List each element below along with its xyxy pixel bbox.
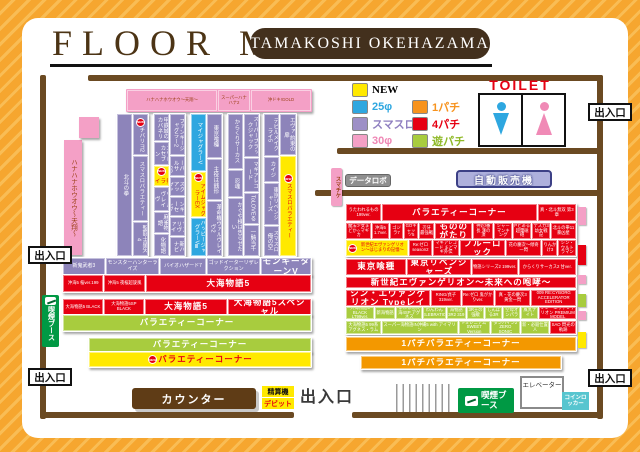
machine-label: ゴッドイーターリザレクション (208, 261, 260, 272)
machine-label: 風丸ナイト (522, 308, 537, 317)
legend-swatch (412, 100, 428, 114)
machine-label: 海物語3R2 319 (448, 308, 465, 317)
hana-hana-island-topbar: ハナハナホウオウ〜天翔〜 スーパーハナハナ2 沖ドキ!GOLD (126, 89, 312, 112)
machine-label: カイジ (269, 161, 275, 178)
machine-label: アイムジャグラーEX (193, 182, 205, 216)
machine-label: Pとある超電磁砲 (514, 224, 530, 238)
legend-swatch (412, 134, 428, 148)
machine-label: ブルーロック (461, 240, 504, 256)
machine-label: GOキャッツ5 (405, 224, 417, 238)
legend-swatch (352, 83, 368, 97)
title-underline (50, 64, 492, 67)
machine-label: からくりサーカス (233, 119, 239, 163)
machine-label: スーパーハナハナ2 (219, 96, 249, 105)
machine-cell: シン・ウルトラマン (558, 240, 576, 256)
machine-cell: 麻雀物語 (154, 212, 169, 233)
machine-label: 新世紀エヴァンゲリオン〜はじまりの記憶〜 (358, 243, 407, 252)
machine-cell: うたわれるもの 199ver. (346, 204, 381, 221)
legend-item: 遊パチ (412, 134, 465, 147)
pachinko-row-h: 大海物語5 99系アグネス・ラムスーパー海物語IN沖縄5 with アイマリンF… (345, 320, 577, 335)
smoking-icon (45, 297, 56, 305)
pachinko-row-b: 魔法少女まどか☆マギカ沖海5 1.7ver.ゴジラ7GOキャッツ5刃牙 最強戦も… (345, 222, 577, 240)
machine-label: 1パチバラエティーコーナー (401, 358, 520, 367)
wall-mid-upper (337, 148, 603, 154)
machine-cell: 大海物語5 99系アグネス・ラム (346, 321, 381, 334)
machine-label: 空母オンパラ (504, 308, 519, 317)
machine-label: 新鬼武者3 (72, 264, 95, 269)
stairs (396, 384, 450, 412)
new-badge: NEW (157, 167, 166, 176)
machine-label: Fミレニアム SWEET Version (460, 321, 490, 334)
machine-label: クランキーセレブ (170, 198, 185, 214)
legend-swatch (352, 100, 368, 114)
machine-label: 東京喰種 (212, 125, 218, 147)
machine-label: 大海物語5 BLACK (66, 305, 101, 310)
machine-label: SAO 閃光の軌跡 (551, 323, 575, 332)
toilet-women (521, 95, 564, 145)
machine-cell: 新・必殺仕置人 (521, 321, 550, 334)
machine-cell: 沖海5 1.7ver. (372, 223, 388, 239)
machine-cell: 忍魂 (228, 170, 243, 197)
checkout-machine-tag: 精算機 (262, 386, 294, 397)
machine-cell: 北斗の拳11 暴凶星 (551, 223, 576, 239)
machine-cell: クランキーセレブ (170, 197, 185, 216)
slot-column-5-right: エヴァ 約束の扉NEWスマスロバラエティー (279, 113, 297, 257)
machine-label: 大海物語5 (164, 302, 208, 311)
machine-label: スーパー海物語IN沖縄5 with アイマリン (383, 323, 457, 332)
machine-label: バイオハザード7 (164, 264, 202, 269)
machine-label: ハナハナホウオウ〜天翔〜 (69, 159, 76, 237)
machine-label: バラエティーコーナー (412, 208, 507, 217)
machine-label: 新海物語 (377, 311, 394, 316)
machine-label: 東京喰種 (357, 262, 395, 271)
machine-label: 真・北斗無双 第3章 (539, 208, 575, 217)
machine-label: 新ハナビ (172, 238, 184, 254)
machine-label: マギアレコード まどマギ外伝 (434, 241, 458, 255)
machine-label: 北斗の拳11 暴凶星 (552, 226, 575, 235)
machine-cell: SAO 閃光の軌跡 (550, 321, 576, 334)
machine-label: バラエティーコーナー (153, 340, 248, 349)
machine-label: 新・必殺仕置人 (522, 323, 549, 332)
machine-cell: デスカ3 幼女戦記 (532, 223, 549, 239)
umi-row-1: 沖海5 桜ver.199沖海5 夜桜超旋風大海物語5 (62, 274, 312, 293)
machine-cell: 海物語3R2 319 (447, 307, 466, 319)
machine-label: マイジャグラーV (196, 122, 202, 164)
machine-label: チバリヨ2 (138, 127, 144, 152)
machine-label: デビルメイクライ5 (266, 116, 278, 154)
machine-cell: 魔法少女まどか☆マギカ (346, 223, 371, 239)
machine-cell: NEW新世紀エヴァンゲリオン〜はじまりの記憶〜 (346, 240, 408, 256)
machine-cell: 東京リベンジャーズ (264, 183, 279, 225)
machine-label: 刃牙 最強戦 (420, 226, 434, 235)
machine-cell: まわるん大海4SP アグネス (396, 307, 422, 319)
machine-label: デスカ3 幼女戦記 (533, 224, 548, 238)
new-badge: NEW (348, 244, 357, 253)
machine-cell: バラエティーコーナー (89, 338, 311, 352)
legend-item: 30φ (352, 134, 416, 147)
legend-swatch (412, 117, 428, 131)
machine-label: ディスクアップ2 (170, 178, 185, 194)
machine-cell: Re:ゼロ season2 (409, 240, 432, 256)
machine-cell: 主役は銭形 (207, 159, 222, 200)
machine-label: エヴァ 約束の扉 (282, 116, 294, 153)
new-badge: NEW (136, 118, 145, 127)
slot-column-3-right: 東京喰種主役は銭形革命機ヴァルヴレイヴ2 (206, 113, 223, 257)
machine-label: 沖ドキ!GOLD (268, 98, 294, 103)
toilet-title: TOILET (480, 77, 560, 93)
machine-cell: マギアレコード (244, 158, 259, 192)
machine-cell: 新海物語 (375, 307, 395, 319)
machine-cell: 花の慶次〜傾奇一閃 (506, 240, 541, 256)
machine-cell: エヴァ 約束の扉 (280, 114, 296, 155)
machine-cell: NEWチバリヨ2 (133, 114, 148, 155)
machine-cell: 1パチバラエティーコーナー (361, 356, 561, 369)
machine-cell: しんぼる3R (485, 307, 502, 319)
machine-label: 魔法少女まどか☆マギカ (347, 224, 370, 238)
machine-cell: 東京喰種 (346, 259, 406, 275)
new-badge: NEW (148, 355, 157, 364)
female-restroom-icon (535, 102, 553, 138)
legend-label: 遊パチ (432, 133, 465, 149)
machine-cell: 新ハナビ (170, 237, 185, 256)
wall-right (597, 75, 603, 419)
machine-cell: 大海物語5 (145, 299, 228, 315)
slot-column-2-left: 甲鉄城のカバネリエウレカセブンNEW白熱ライブヴァルヴレイヴ麻雀物語化物語 (153, 113, 170, 257)
machine-cell: 革命機ヴァルヴレイヴ2 (207, 201, 222, 256)
machine-label: 沖海5 桜ver.199 (68, 281, 99, 286)
machine-label: ヴァルヴレイヴ (154, 189, 169, 210)
machine-label: 大海物語5 (207, 279, 251, 288)
machine-cell: エウレカセブン (154, 142, 169, 164)
machine-cell: バラエティーコーナー (382, 204, 536, 221)
machine-label: 大海物語5SP BLACK (105, 302, 143, 311)
legend-item: 4パチ (412, 117, 465, 130)
machine-cell: ToLOVEる (244, 193, 259, 224)
machine-label: 沖海5 夜桜超旋風 (108, 281, 142, 286)
floor-map-page: FLOOR MAP TAMAKOSHI OKEHAZAMA NEW 25φ スマ… (0, 0, 640, 452)
machine-label: シン・エヴァンゲリオン PREMIUM MODEL (540, 307, 575, 319)
machine-label: 主役は銭形 (212, 166, 218, 194)
machine-cell: ハッピージャグラーVⅢ (191, 218, 206, 256)
machine-cell: 東京リベンジャーズ (407, 259, 470, 275)
machine-label: 押忍!番長 漢の頂 (474, 224, 492, 238)
machine-cell: ダンバイン2 ZERO SONIC (491, 321, 520, 334)
machine-cell: からくりサーカス2 甘ver. (519, 259, 576, 275)
machine-cell: スーパー海物語IN沖縄5 with アイマリン (382, 321, 458, 334)
machine-cell: 刃牙 最強戦 (419, 223, 435, 239)
machine-cell: スーパーハナハナ2 (218, 90, 250, 111)
pachinko-row-g: 大海物語5 BLACK LT99ver.新海物語まわるん大海4SP アグネスわん… (345, 306, 577, 320)
machine-label: スマスロバラエティー (138, 161, 144, 216)
machine-label: 1パチバラエティーコーナー (401, 339, 520, 348)
smart-ticket-label: スマチケ (334, 176, 340, 198)
pachinko-row-f: シン・エヴァンゲリオン TypeレイRING/貞子 319ver.Re:ゼロ 鬼… (345, 289, 577, 307)
machine-label: 大海物語5スペシャル (229, 299, 310, 315)
machine-cell: 大海物語5 BLACK (63, 299, 103, 315)
machine-cell: 3R王の強敵 (467, 307, 484, 319)
legend-item: NEW (352, 83, 416, 96)
machine-label: 麻雀物語 (156, 214, 168, 232)
elevator: エレベーター (520, 376, 564, 409)
machine-label: 忍魂 (233, 178, 239, 189)
exit-right-upper: 出入口 (588, 103, 632, 121)
machine-cell: 沖ドキ!GOLD (251, 90, 311, 111)
machine-label: 一騎当千 (249, 229, 255, 251)
machine-label: 化物語 (159, 237, 165, 254)
machine-label: 009 RE:CYBORG ACCELERATOR EDITION (532, 291, 575, 305)
toilet-area (478, 93, 566, 147)
pachinko-row-a: うたわれるもの 199ver.バラエティーコーナー真・北斗無双 第3章 (345, 203, 577, 222)
machine-cell: マギアレコード まどマギ外伝 (433, 240, 459, 256)
machine-cell: からくりサーカス (228, 114, 243, 169)
end-cap-unit (578, 207, 586, 225)
machine-cell: 大海物語5 BLACK LT99ver. (346, 307, 374, 319)
end-cap-unit (578, 311, 586, 320)
machine-label: Re:ゼロ season2 (410, 243, 431, 252)
machine-cell: スマスロ俺の空 (264, 226, 279, 256)
machine-label: かぐや様は告らせたい (230, 200, 242, 253)
smart-ticket-sign: スマチケ (331, 168, 342, 206)
machine-cell: 大海物語5スペシャル (228, 299, 311, 315)
legend-label: 30φ (372, 135, 392, 147)
machine-cell: 真・北斗無双 第3章 (538, 204, 576, 221)
counter: カウンター (132, 388, 256, 409)
machine-cell: 009 RE:CYBORG ACCELERATOR EDITION (531, 290, 576, 306)
machine-cell: ファンキージャグラー2 (170, 114, 185, 155)
machine-cell: NEWバラエティーコーナー (89, 352, 311, 367)
smoking-booth-bottom: 喫煙ブース (458, 388, 514, 413)
right-wall-end-units (578, 207, 586, 348)
exit-bottom-center: 出入口 (300, 383, 354, 407)
machine-label: ニューパルサーSP (170, 158, 185, 174)
debit-tag: デビット (262, 398, 294, 409)
machine-label: RING/貞子 319ver. (432, 293, 459, 302)
machine-cell: バイオハザード7 (160, 258, 206, 275)
legend-item: 25φ (352, 100, 416, 113)
slot-column-4-right: スーパーブラックジャックマギアレコードToLOVEる一騎当千 (243, 113, 260, 257)
wall-bottom-left (40, 412, 294, 418)
coin-locker: コインロッカー (562, 392, 589, 410)
machine-label: うたわれるもの 199ver. (347, 208, 380, 217)
male-restroom-icon (492, 102, 510, 138)
machine-label: もののがたり (436, 223, 471, 239)
machine-cell: NEWアイムジャグラーEX (191, 172, 206, 217)
machine-cell: マイジャグラーV (191, 114, 206, 171)
slot-column-1-left: 北斗の拳 (116, 113, 133, 257)
slot-column-3-left: マイジャグラーVNEWアイムジャグラーEXハッピージャグラーVⅢ (190, 113, 207, 257)
machine-label: バーサスリヴァイズ (170, 218, 185, 234)
machine-label: スマスロバラエティー (285, 183, 291, 238)
machine-label: ファンキージャグラー2 (172, 116, 184, 153)
machine-label: エウレカセブン (154, 144, 169, 163)
machine-label: 革命機ヴァルヴレイヴ2 (209, 203, 221, 253)
machine-cell: ディスクアップ2 (170, 177, 185, 196)
store-name-badge: TAMAKOSHI OKEHAZAMA (250, 28, 490, 59)
one-yen-variety-row-2: 1パチバラエティーコーナー (360, 355, 562, 370)
machine-cell: Fミレニアム SWEET Version (459, 321, 491, 334)
new-badge: NEW (284, 174, 293, 183)
machine-label: 東京リベンジャーズ (266, 185, 278, 223)
machine-label: ハッピージャグラーVⅢ (193, 220, 205, 254)
machine-label: シャーマンキング (495, 224, 510, 238)
pachinko-row-e: 新世紀エヴァンゲリオン〜未来への咆哮〜 (345, 276, 577, 289)
machine-cell: モンキーターンV (261, 258, 311, 275)
machine-label: スマスロ俺の空 (266, 227, 278, 254)
machine-cell: りんかけ3 (542, 240, 557, 256)
legend-label: スマスロ (372, 116, 416, 132)
slot-column-2-right: ファンキージャグラー2ニューパルサーSPディスクアップ2クランキーセレブバーサス… (169, 113, 186, 257)
end-cap-unit (578, 294, 586, 307)
hana-hana-side-island: ハナハナホウオウ〜天翔〜 (64, 140, 82, 255)
machine-label: 3R王の強敵 (468, 308, 483, 317)
machine-cell: ゴッドイーターリザレクション (207, 258, 261, 275)
toilet-men (480, 95, 521, 145)
machine-cell: 物語シリーズ2 199ver. (472, 259, 518, 275)
exit-left-upper: 出入口 (28, 246, 72, 264)
pachinko-row-d: 東京喰種東京リベンジャーズ物語シリーズ2 199ver.からくりサーカス2 甘v… (345, 258, 577, 276)
machine-label: からくりサーカス2 甘ver. (523, 265, 572, 270)
legend-swatch (352, 117, 368, 131)
slot-column-4-left: からくりサーカス忍魂かぐや様は告らせたい (227, 113, 244, 257)
end-cap-unit (578, 275, 586, 284)
machine-cell: 沖海5 桜ver.199 (63, 275, 103, 292)
machine-cell: 1パチバラエティーコーナー (346, 337, 576, 351)
exit-right-lower: 出入口 (588, 369, 632, 387)
slot-column-1-right: NEWチバリヨ2スマスロバラエティー聖闘士星矢4 (132, 113, 149, 257)
machine-cell: シン・エヴァンゲリオン Typeレイ (346, 290, 430, 306)
variety-corner-row-new: NEWバラエティーコーナー (88, 351, 312, 368)
legend-column-1: NEW 25φ スマスロ 30φ (352, 83, 416, 147)
machine-label: 東京リベンジャーズ (408, 259, 469, 275)
machine-label: しんぼる3R (486, 308, 501, 317)
machine-label: 甲鉄城のカバネリ (156, 116, 168, 140)
machine-label: 花の慶次〜傾奇一閃 (507, 243, 540, 252)
machine-cell: シャーマンキング (494, 223, 511, 239)
machine-cell: 押忍!番長 漢の頂 (473, 223, 493, 239)
machine-cell: Pとある超電磁砲 (513, 223, 531, 239)
machine-cell: 沖海5 夜桜超旋風 (104, 275, 144, 292)
machine-cell: もののがたり (435, 223, 472, 239)
wall-mid-lower (315, 190, 603, 196)
slot-column-5-left: デビルメイクライ5カイジ東京リベンジャーズスマスロ俺の空 (263, 113, 280, 257)
machine-label: 沖海5 1.7ver. (373, 226, 387, 235)
machine-cell: 北斗の拳 (117, 114, 132, 256)
machine-cell: 大海物語5 (146, 275, 311, 292)
machine-cell: 化物語 (154, 234, 169, 256)
smoking-icon (465, 396, 478, 406)
machine-cell: スーパーブラックジャック (244, 114, 259, 157)
smoking-booth-left: 喫煙ブース (42, 295, 59, 347)
machine-label: まわるん大海4SP アグネス (397, 307, 421, 319)
machine-cell: スマスロバラエティー (133, 156, 148, 221)
machine-cell: ブルーロック (460, 240, 505, 256)
machine-cell: ゴジラ7 (390, 223, 404, 239)
pachinko-row-c: NEW新世紀エヴァンゲリオン〜はじまりの記憶〜Re:ゼロ season2マギアレ… (345, 239, 577, 257)
machine-label: マギアレコード (246, 160, 258, 190)
machine-cell: RING/貞子 319ver. (431, 290, 460, 306)
machine-label: 新世紀エヴァンゲリオン〜未来への咆哮〜 (371, 278, 552, 287)
legend-column-2: 1パチ 4パチ 遊パチ (412, 100, 465, 147)
legend-swatch (352, 134, 368, 148)
machine-label: 物語シリーズ2 199ver. (473, 265, 516, 270)
machine-cell: 風丸ナイト (521, 307, 538, 319)
legend-label: 4パチ (432, 116, 460, 132)
machine-label: わんわん CELEBRATION (423, 308, 446, 317)
machine-cell: 東京喰種 (207, 114, 222, 158)
machine-cell: シン・エヴァンゲリオン PREMIUM MODEL (539, 307, 576, 319)
machine-cell: ハナハナホウオウ〜天翔〜 (127, 90, 217, 111)
machine-label: ダンバイン2 ZERO SONIC (492, 321, 519, 334)
machine-cell: NEWスマスロバラエティー (280, 156, 296, 256)
machine-label: 聖闘士星矢4 (135, 224, 147, 254)
machine-label: バラエティーコーナー (140, 318, 235, 327)
machine-cell: モンスターハンターライズ (106, 258, 160, 275)
machine-label: スーパーブラックジャック (246, 116, 258, 155)
machine-label: 真・花の慶次3 黄金一閃 (496, 293, 529, 302)
pink-end-unit (79, 117, 99, 138)
machine-label: ハナハナホウオウ〜天翔〜 (146, 98, 198, 103)
machine-label: シン・エヴァンゲリオン Typeレイ (347, 290, 429, 306)
machine-label: 北斗の拳 (122, 174, 128, 196)
machine-cell: Re:ゼロ 鬼がかりver. (462, 290, 494, 306)
machine-cell: ヴァルヴレイヴ (154, 187, 169, 211)
legend-label: 1パチ (432, 99, 460, 115)
end-cap-unit (578, 245, 586, 265)
variety-corner-row-1: バラエティーコーナー (62, 314, 312, 332)
new-badge: NEW (194, 173, 203, 182)
end-cap-unit (578, 332, 586, 348)
machine-label: シン・ウルトラマン (559, 241, 575, 255)
machine-cell: カイジ (264, 157, 279, 182)
machine-label: 白熱ライブ (154, 176, 169, 186)
one-yen-variety-row-1: 1パチバラエティーコーナー (345, 336, 577, 352)
legend-item: 1パチ (412, 100, 465, 113)
vending-machine: 自動販売機 (456, 170, 552, 188)
machine-label: モンスターハンターライズ (107, 261, 159, 272)
machine-cell: デビルメイクライ5 (264, 114, 279, 156)
machine-cell: 聖闘士星矢4 (133, 222, 148, 256)
machine-cell: 新世紀エヴァンゲリオン〜未来への咆哮〜 (346, 277, 576, 288)
machine-cell: NEW白熱ライブ (154, 166, 169, 187)
legend-item: スマスロ (352, 117, 416, 130)
machine-label: りんかけ3 (543, 243, 556, 252)
machine-label: ゴジラ7 (391, 226, 403, 235)
smoking-booth-label: 喫煙ブース (481, 391, 507, 410)
machine-label: 大海物語5 99系アグネス・ラム (347, 323, 380, 332)
smoking-booth-label: 喫煙ブース (46, 306, 56, 341)
machine-cell: 一騎当千 (244, 225, 259, 256)
machine-cell: 空母オンパラ (503, 307, 520, 319)
machine-cell: バーサスリヴァイズ (170, 217, 185, 236)
exit-left-lower: 出入口 (28, 368, 72, 386)
machine-label: モンキーターンV (262, 258, 310, 275)
machine-cell: GOキャッツ5 (404, 223, 418, 239)
machine-label: バラエティーコーナー (158, 355, 253, 364)
machine-cell: わんわん CELEBRATION (423, 307, 446, 319)
machine-cell: バラエティーコーナー (63, 315, 311, 331)
machine-cell: 大海物語5SP BLACK (104, 299, 144, 315)
machine-label: Re:ゼロ 鬼がかりver. (463, 293, 493, 302)
machine-label: ToLOVEる (249, 195, 255, 221)
machine-cell: ニューパルサーSP (170, 156, 185, 175)
legend-label: NEW (372, 84, 398, 96)
machine-label: 大海物語5 BLACK LT99ver. (347, 307, 373, 319)
legend-label: 25φ (372, 101, 392, 113)
machine-cell: かぐや様は告らせたい (228, 198, 243, 256)
machine-cell: 真・花の慶次3 黄金一閃 (495, 290, 530, 306)
machine-cell: 甲鉄城のカバネリ (154, 114, 169, 141)
data-robo-terminal: データロボ (345, 174, 391, 187)
